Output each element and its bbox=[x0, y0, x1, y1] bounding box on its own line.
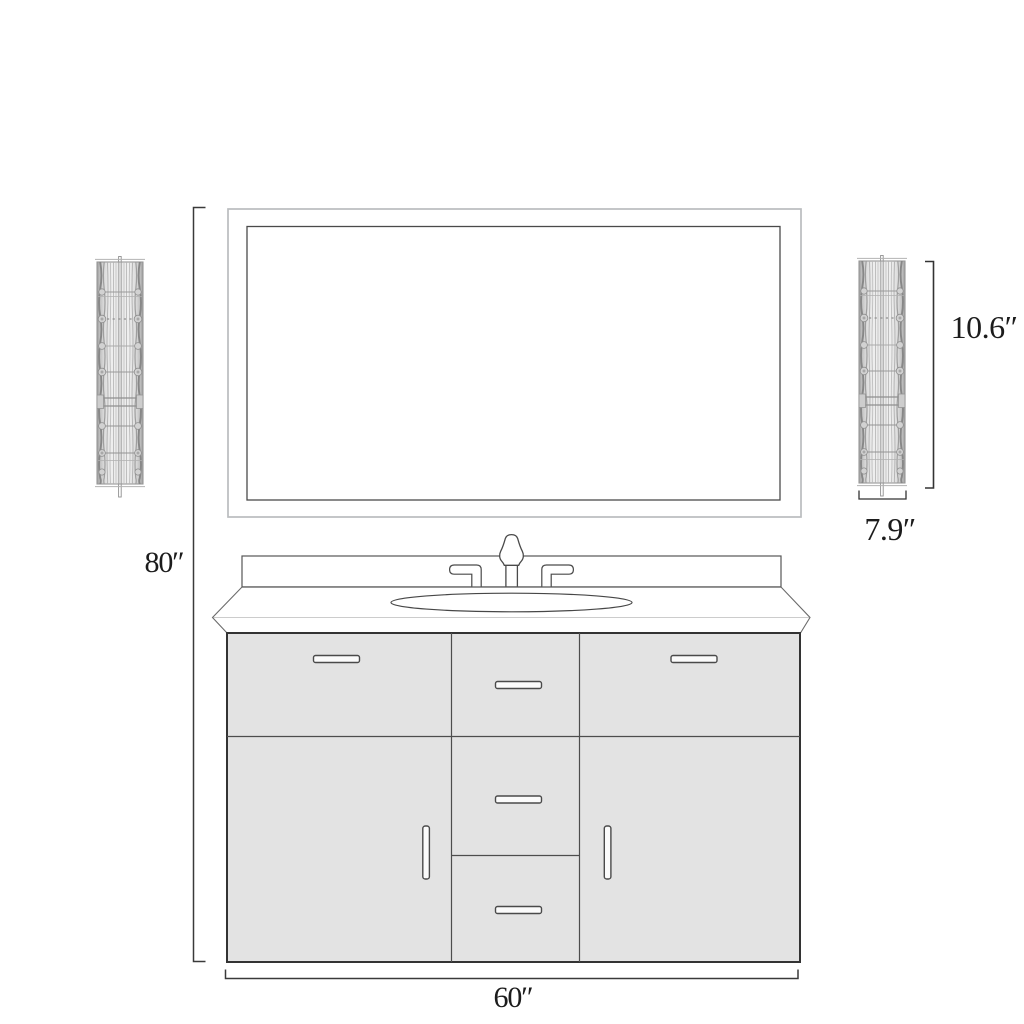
svg-text:7.9″: 7.9″ bbox=[864, 511, 915, 547]
svg-text:60″: 60″ bbox=[494, 981, 533, 1014]
svg-text:80″: 80″ bbox=[145, 546, 184, 579]
svg-text:10.6″: 10.6″ bbox=[951, 309, 1018, 345]
